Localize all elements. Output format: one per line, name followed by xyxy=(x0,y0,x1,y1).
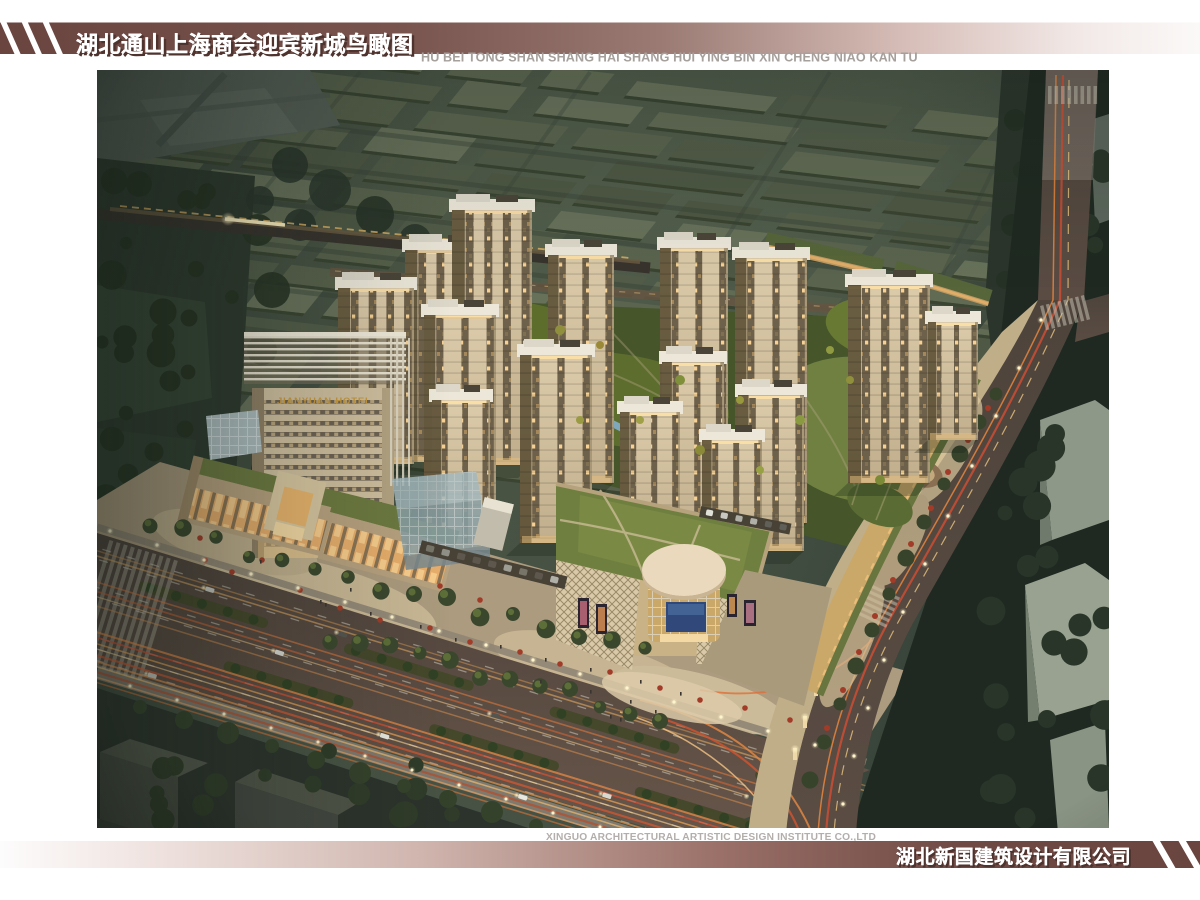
svg-text:HU BEI TONG SHAN SHANG HAI SHA: HU BEI TONG SHAN SHANG HAI SHANG HUI YIN… xyxy=(421,51,918,65)
svg-text:湖北通山上海商会迎宾新城鸟瞰图: 湖北通山上海商会迎宾新城鸟瞰图 xyxy=(76,32,414,57)
svg-text:湖北新国建筑设计有限公司: 湖北新国建筑设计有限公司 xyxy=(896,845,1131,868)
